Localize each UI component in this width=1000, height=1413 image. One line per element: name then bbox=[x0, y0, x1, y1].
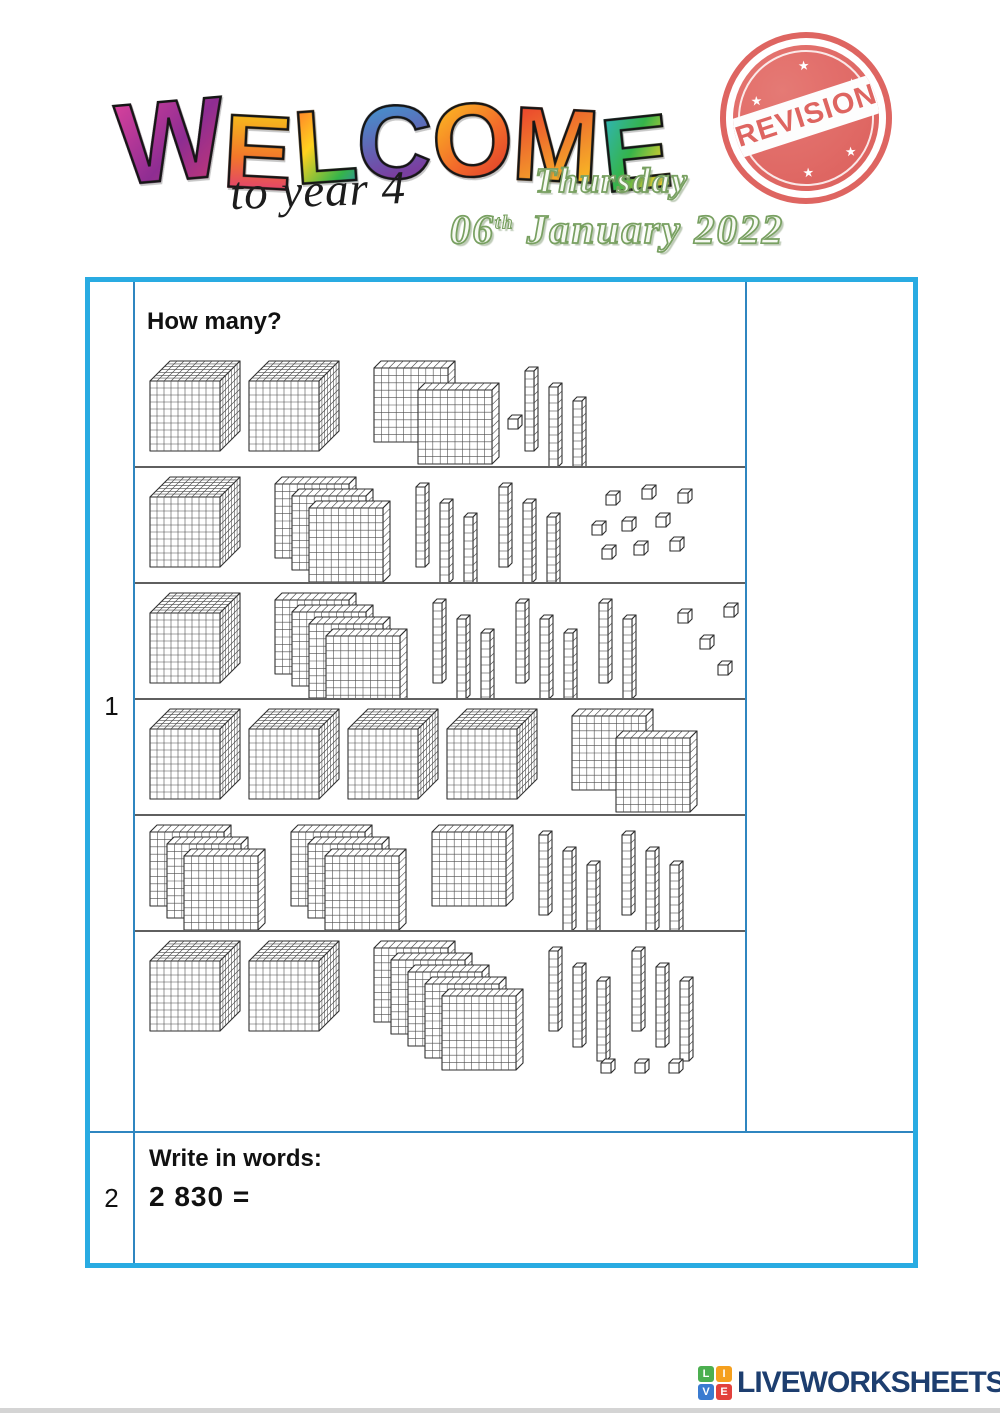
base10-row-1 bbox=[135, 352, 745, 468]
star-icon: ★ bbox=[750, 93, 763, 110]
one-cube bbox=[600, 1058, 616, 1079]
one-cube bbox=[723, 602, 739, 623]
logo-square-l: L bbox=[698, 1366, 714, 1382]
date-text: 06th January 2022 bbox=[450, 205, 784, 253]
thousand-cube bbox=[347, 708, 439, 805]
question1-answer-area[interactable] bbox=[747, 282, 913, 1131]
ten-rod bbox=[669, 860, 684, 932]
ones-blocks bbox=[493, 360, 613, 452]
revision-stamp: ★ ★ ★ ★ ★ REVISION bbox=[714, 26, 898, 210]
base10-row-4 bbox=[135, 700, 745, 816]
liveworksheets-wordmark: LIVEWORKSHEETS bbox=[737, 1366, 1000, 1400]
thousands-blocks bbox=[149, 708, 545, 805]
ten-rod bbox=[563, 628, 578, 700]
thousands-blocks bbox=[149, 476, 248, 573]
ten-rod bbox=[572, 962, 587, 1053]
thousand-cube bbox=[248, 360, 340, 457]
ten-rod bbox=[539, 614, 554, 700]
ten-rod bbox=[463, 512, 478, 584]
welcome-subtitle: to year 4 bbox=[229, 161, 407, 221]
base10-row-6 bbox=[135, 932, 745, 1104]
one-cube bbox=[507, 414, 523, 435]
ten-rod bbox=[515, 598, 530, 689]
question1-prompt: How many? bbox=[135, 282, 745, 352]
tens-blocks bbox=[415, 476, 561, 567]
one-cube bbox=[699, 634, 715, 655]
liveworksheets-icon: L I V E bbox=[698, 1366, 732, 1400]
question1-number: 1 bbox=[90, 282, 135, 1131]
ten-rod bbox=[498, 482, 513, 573]
hundreds-blocks bbox=[431, 824, 512, 909]
base10-row-5 bbox=[135, 816, 745, 932]
hundred-flat bbox=[615, 730, 698, 816]
logo-square-i: I bbox=[716, 1366, 732, 1382]
weekday-text: Thursday bbox=[535, 161, 689, 201]
date-day: 06 bbox=[450, 206, 495, 252]
hundreds-blocks bbox=[274, 476, 389, 584]
hundreds-blocks bbox=[149, 824, 264, 932]
star-icon: ★ bbox=[797, 58, 810, 75]
hundred-flat bbox=[325, 628, 408, 700]
one-cube bbox=[591, 520, 607, 541]
thousand-cube bbox=[149, 592, 241, 689]
hundred-flat bbox=[441, 988, 524, 1076]
ten-rod bbox=[538, 830, 553, 921]
ones-blocks bbox=[587, 476, 691, 568]
worksheet-page: WELCOME to year 4 Thursday 06th January … bbox=[0, 0, 1000, 1413]
star-icon: ★ bbox=[802, 164, 815, 181]
question2-expression: 2 830 = bbox=[135, 1173, 913, 1213]
ten-rod bbox=[415, 482, 430, 573]
one-cube bbox=[621, 516, 637, 537]
ones-blocks bbox=[663, 592, 745, 684]
one-cube bbox=[633, 540, 649, 561]
ten-rod bbox=[598, 598, 613, 689]
thousands-blocks bbox=[149, 592, 248, 689]
star-icon: ★ bbox=[844, 144, 857, 161]
stamp-band: REVISION bbox=[728, 68, 884, 164]
ten-rod bbox=[480, 628, 495, 700]
base10-blocks bbox=[135, 352, 745, 1104]
base10-row-3 bbox=[135, 584, 745, 700]
one-cube bbox=[668, 1058, 684, 1079]
hundreds-blocks bbox=[571, 708, 696, 815]
welcome-letter: W bbox=[112, 79, 230, 202]
question1-content: How many? bbox=[135, 282, 747, 1131]
tens-blocks bbox=[432, 592, 637, 683]
liveworksheets-logo: L I V E LIVEWORKSHEETS bbox=[698, 1366, 1000, 1400]
ten-rod bbox=[439, 498, 454, 584]
thousand-cube bbox=[149, 360, 241, 457]
hundred-flat bbox=[308, 500, 391, 584]
question-table: 1 How many? 2 Write in words: 2 830 = bbox=[85, 277, 918, 1268]
ten-rod bbox=[546, 512, 561, 584]
question1-row: 1 How many? bbox=[90, 282, 913, 1133]
thousand-cube bbox=[248, 708, 340, 805]
hundreds-blocks bbox=[373, 940, 522, 1073]
logo-square-v: V bbox=[698, 1384, 714, 1400]
hundreds-blocks bbox=[274, 592, 406, 700]
stamp-outer-ring: ★ ★ ★ ★ ★ REVISION bbox=[714, 26, 898, 210]
ten-rod bbox=[586, 860, 601, 932]
hundred-flat bbox=[183, 848, 266, 932]
ten-rod bbox=[621, 830, 636, 921]
stamp-disc: ★ ★ ★ ★ ★ REVISION bbox=[728, 40, 884, 196]
ten-rod bbox=[622, 614, 637, 700]
question2-row: 2 Write in words: 2 830 = bbox=[90, 1133, 913, 1263]
one-cube bbox=[601, 544, 617, 565]
ten-rod bbox=[562, 846, 577, 932]
one-cube bbox=[677, 488, 693, 509]
one-cube bbox=[634, 1058, 650, 1079]
stamp-label: REVISION bbox=[731, 78, 881, 155]
one-cube bbox=[717, 660, 733, 681]
date-ordinal: th bbox=[495, 212, 514, 232]
thousand-cube bbox=[149, 708, 241, 805]
base10-row-2 bbox=[135, 468, 745, 584]
thousands-blocks bbox=[149, 360, 347, 457]
ten-rod bbox=[645, 846, 660, 932]
one-cube bbox=[669, 536, 685, 557]
hundreds-blocks bbox=[373, 360, 498, 467]
thousand-cube bbox=[446, 708, 538, 805]
ten-rod bbox=[548, 946, 563, 1037]
one-cube bbox=[677, 608, 693, 629]
ones-blocks bbox=[600, 940, 720, 1032]
logo-square-e: E bbox=[716, 1384, 732, 1400]
question2-number: 2 bbox=[90, 1133, 135, 1263]
thousand-cube bbox=[149, 476, 241, 573]
thousand-cube bbox=[248, 940, 340, 1037]
thousand-cube bbox=[149, 940, 241, 1037]
one-cube bbox=[605, 490, 621, 511]
question2-content[interactable]: Write in words: 2 830 = bbox=[135, 1133, 913, 1263]
ten-rod bbox=[432, 598, 447, 689]
date-month-year: January 2022 bbox=[514, 206, 784, 252]
hundred-flat bbox=[324, 848, 407, 932]
hundred-flat bbox=[431, 824, 514, 912]
hundreds-blocks bbox=[290, 824, 405, 932]
hundred-flat bbox=[417, 382, 500, 468]
ten-rod bbox=[456, 614, 471, 700]
one-cube bbox=[641, 484, 657, 505]
question2-prompt: Write in words: bbox=[135, 1133, 913, 1173]
one-cube bbox=[655, 512, 671, 533]
tens-blocks bbox=[538, 824, 684, 915]
welcome-letter: O bbox=[429, 87, 515, 195]
ten-rod bbox=[522, 498, 537, 584]
thousands-blocks bbox=[149, 940, 347, 1037]
page-edge-line bbox=[0, 1408, 1000, 1413]
